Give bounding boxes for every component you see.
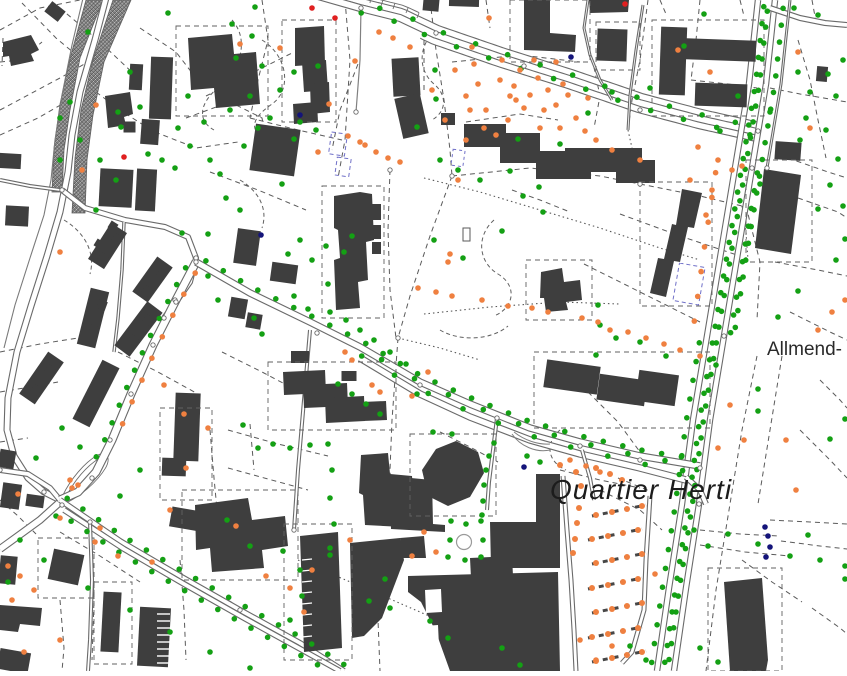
svg-text:Allmend-: Allmend- bbox=[767, 339, 842, 360]
svg-text:Quartier Herti: Quartier Herti bbox=[550, 474, 732, 505]
